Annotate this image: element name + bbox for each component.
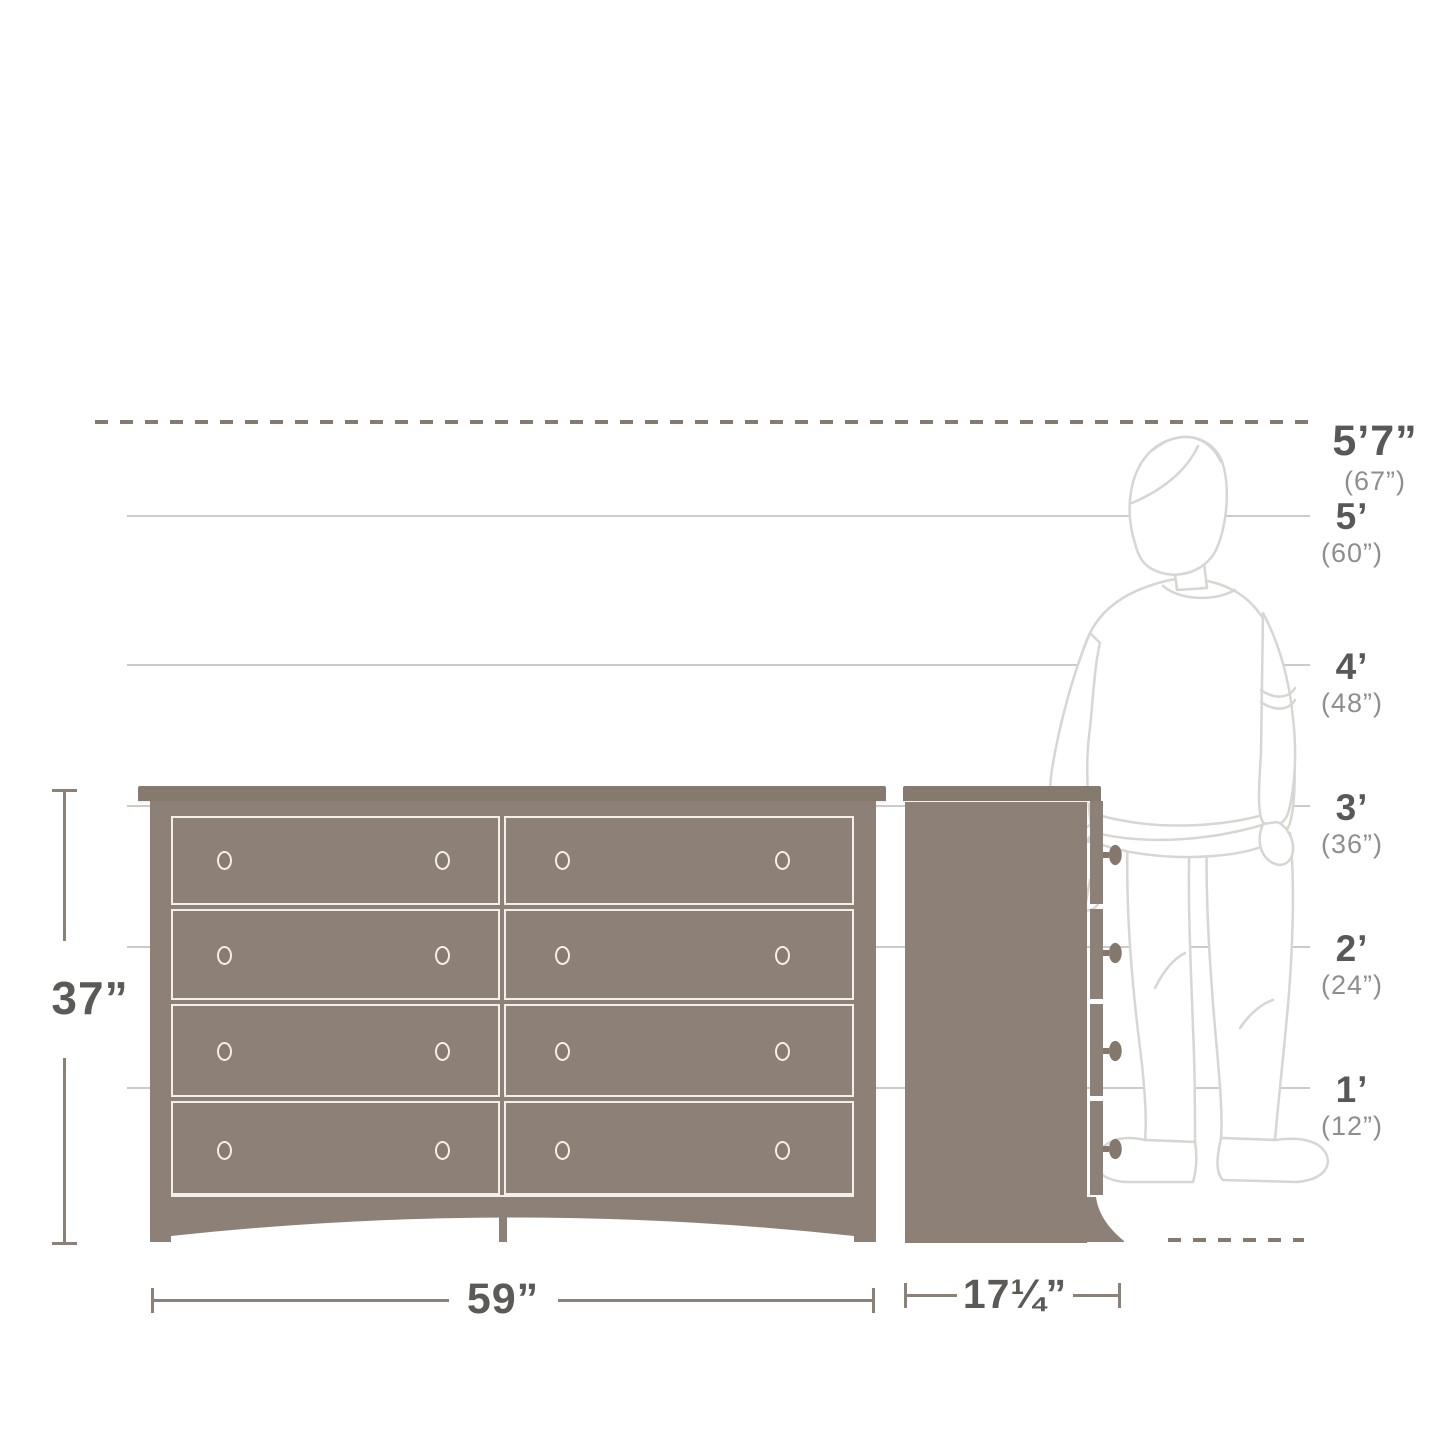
floor-line-dashed bbox=[1168, 1238, 1304, 1242]
drawer-knob-icon bbox=[775, 1141, 790, 1160]
drawer-knob-icon bbox=[217, 851, 232, 870]
drawer-knob-icon bbox=[435, 1042, 450, 1061]
height-dim-line-lower bbox=[63, 1058, 66, 1242]
drawer-knob-icon bbox=[775, 946, 790, 965]
depth-dim-tick-right bbox=[1118, 1283, 1121, 1308]
drawer-knob-icon bbox=[217, 1141, 232, 1160]
depth-dim-label: 17¼” bbox=[940, 1274, 1090, 1315]
height-dim-label: 37” bbox=[15, 975, 165, 1021]
width-dim-label: 59” bbox=[428, 1278, 578, 1321]
depth-dim-line-right bbox=[1073, 1294, 1119, 1297]
dresser-side-drawer-edge bbox=[1090, 1004, 1103, 1096]
dresser-side-drawer-edge bbox=[1090, 909, 1103, 999]
side-knob-icon bbox=[1103, 1038, 1124, 1064]
width-dim-line-left bbox=[153, 1299, 449, 1302]
width-dim-tick-right bbox=[872, 1288, 875, 1313]
drawer bbox=[504, 1101, 854, 1195]
side-knob-icon bbox=[1103, 940, 1124, 966]
dresser-side-drawer-edge bbox=[1090, 801, 1103, 904]
drawer-knob-icon bbox=[555, 1141, 570, 1160]
drawer-knob-icon bbox=[775, 851, 790, 870]
drawer-knob-icon bbox=[555, 851, 570, 870]
dresser-side-panel bbox=[905, 801, 1087, 1243]
drawer-knob-icon bbox=[555, 1042, 570, 1061]
drawer-knob-icon bbox=[775, 1042, 790, 1061]
height-dim-line-upper bbox=[63, 791, 66, 941]
drawer bbox=[504, 909, 854, 1000]
drawer bbox=[171, 1101, 500, 1195]
width-dim-line-right bbox=[558, 1299, 874, 1302]
dresser-front-apron bbox=[150, 1195, 876, 1242]
drawer-knob-icon bbox=[435, 851, 450, 870]
drawer-knob-icon bbox=[217, 1042, 232, 1061]
drawer-knob-icon bbox=[435, 946, 450, 965]
dresser-front bbox=[150, 801, 876, 1242]
dimension-diagram: { "height_markers": [ {"label": "5’7”", … bbox=[0, 0, 1445, 1445]
drawer bbox=[504, 816, 854, 905]
drawer bbox=[504, 1004, 854, 1097]
side-knob-icon bbox=[1103, 1136, 1124, 1162]
drawer-knob-icon bbox=[217, 946, 232, 965]
drawer-knob-icon bbox=[555, 946, 570, 965]
drawer bbox=[171, 909, 500, 1000]
height-line-5ft7-dashed bbox=[95, 420, 1320, 424]
drawer bbox=[171, 816, 500, 905]
height-dim-tick-bottom bbox=[52, 1242, 77, 1245]
drawer bbox=[171, 1004, 500, 1097]
dresser-side-drawer-edge bbox=[1090, 1101, 1103, 1195]
drawer-knob-icon bbox=[435, 1141, 450, 1160]
dresser-side-foot bbox=[1087, 1197, 1125, 1242]
side-knob-icon bbox=[1103, 842, 1124, 868]
